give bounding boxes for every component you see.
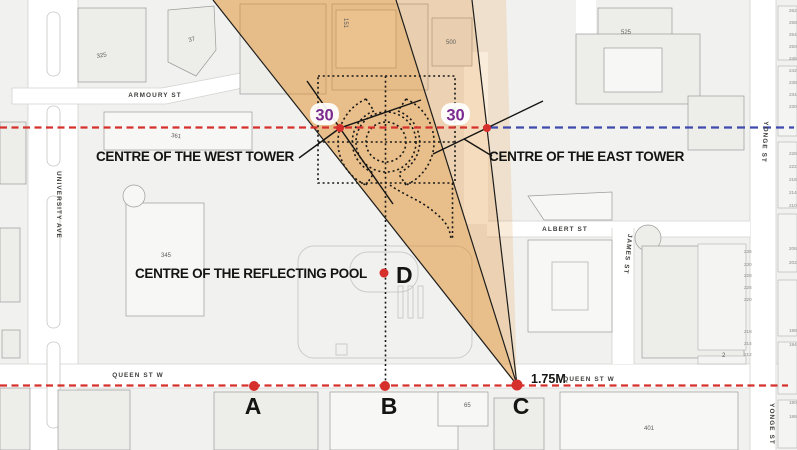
addr-text: 262 bbox=[789, 8, 797, 13]
edge-building bbox=[0, 122, 26, 184]
block-south bbox=[0, 388, 30, 450]
old-city-hall bbox=[528, 240, 612, 332]
block-south bbox=[58, 390, 130, 450]
street-text: ARMOURY ST bbox=[128, 92, 182, 99]
addr-text: 220 bbox=[744, 297, 752, 302]
building-345 bbox=[126, 203, 204, 316]
edge-building bbox=[0, 228, 20, 302]
building-361 bbox=[104, 112, 252, 150]
fountain bbox=[123, 185, 145, 207]
bnum-text: 345 bbox=[161, 253, 172, 259]
addr-text: 230 bbox=[789, 104, 797, 109]
addr-text: 242 bbox=[789, 68, 797, 73]
building-ne2 bbox=[688, 96, 744, 150]
point-a-label: A bbox=[245, 393, 262, 419]
addr-text: 246 bbox=[789, 56, 797, 61]
point-c-label: C bbox=[513, 393, 530, 419]
bnum-text: 151 bbox=[342, 18, 348, 29]
addr-text: 238 bbox=[789, 80, 797, 85]
addr-text: 228 bbox=[744, 273, 752, 278]
addr-text: 190 bbox=[789, 400, 797, 405]
addr-text: 226 bbox=[789, 151, 797, 156]
addr-text: 214 bbox=[744, 341, 752, 346]
bnum-text: 65 bbox=[464, 403, 471, 409]
addr-text: 250 bbox=[789, 44, 797, 49]
point-b-dot bbox=[380, 381, 390, 391]
angle-value-west: 30 bbox=[315, 107, 333, 125]
addr-text: 194 bbox=[789, 342, 797, 347]
addr-text: 230 bbox=[744, 262, 752, 267]
addr-text: 202 bbox=[789, 260, 797, 265]
street-text: QUEEN ST W bbox=[563, 376, 614, 383]
point-b-label: B bbox=[381, 393, 398, 419]
map-canvas: 30 30 CENTRE OF THE WEST TOWER CENTRE OF… bbox=[0, 0, 797, 450]
block-south bbox=[214, 392, 318, 450]
addr-text: 218 bbox=[789, 177, 797, 182]
west-tower-centre-dot bbox=[336, 124, 344, 132]
building-325 bbox=[78, 8, 146, 82]
reflecting-pool-label: CENTRE OF THE REFLECTING POOL bbox=[135, 266, 367, 281]
distance-label: 1.75M bbox=[531, 372, 566, 386]
street-text: UNIVERSITY AVE bbox=[55, 171, 62, 239]
addr-text: 214 bbox=[789, 190, 797, 195]
addr-text: 258 bbox=[789, 20, 797, 25]
building-401 bbox=[560, 392, 738, 450]
view-corridor-map: 30 30 CENTRE OF THE WEST TOWER CENTRE OF… bbox=[0, 0, 797, 450]
street-text: YONGE ST bbox=[768, 403, 775, 445]
addr-text: 206 bbox=[789, 246, 797, 251]
street-text: ALBERT ST bbox=[542, 226, 588, 233]
addr-text: 226 bbox=[744, 285, 752, 290]
addr-text: 210 bbox=[789, 203, 797, 208]
addr-text: 218 bbox=[744, 329, 752, 334]
bnum-text: 401 bbox=[644, 426, 655, 432]
addr-text: 234 bbox=[789, 92, 797, 97]
addr-text: 198 bbox=[789, 328, 797, 333]
street-text: QUEEN ST W bbox=[112, 372, 163, 379]
east-tower-label: CENTRE OF THE EAST TOWER bbox=[489, 149, 685, 164]
addr-text: 254 bbox=[789, 32, 797, 37]
addr-text: 186 bbox=[789, 414, 797, 419]
point-d-dot bbox=[380, 269, 389, 278]
point-a-dot bbox=[249, 381, 259, 391]
edge-building bbox=[2, 330, 20, 358]
building-65 bbox=[438, 392, 488, 426]
point-d-label: D bbox=[396, 262, 413, 288]
addr-text: 236 bbox=[744, 249, 752, 254]
point-c-dot bbox=[512, 380, 523, 391]
bnum-text: 500 bbox=[446, 40, 457, 46]
angle-value-east: 30 bbox=[446, 107, 464, 125]
bnum-text: 525 bbox=[621, 30, 632, 36]
addr-text: 222 bbox=[789, 164, 797, 169]
east-tower-centre-dot bbox=[483, 124, 491, 132]
yonge-st-road bbox=[750, 0, 776, 450]
west-tower-label: CENTRE OF THE WEST TOWER bbox=[96, 149, 295, 164]
addr-text: 212 bbox=[744, 352, 752, 357]
building-ne-inner bbox=[604, 48, 662, 92]
